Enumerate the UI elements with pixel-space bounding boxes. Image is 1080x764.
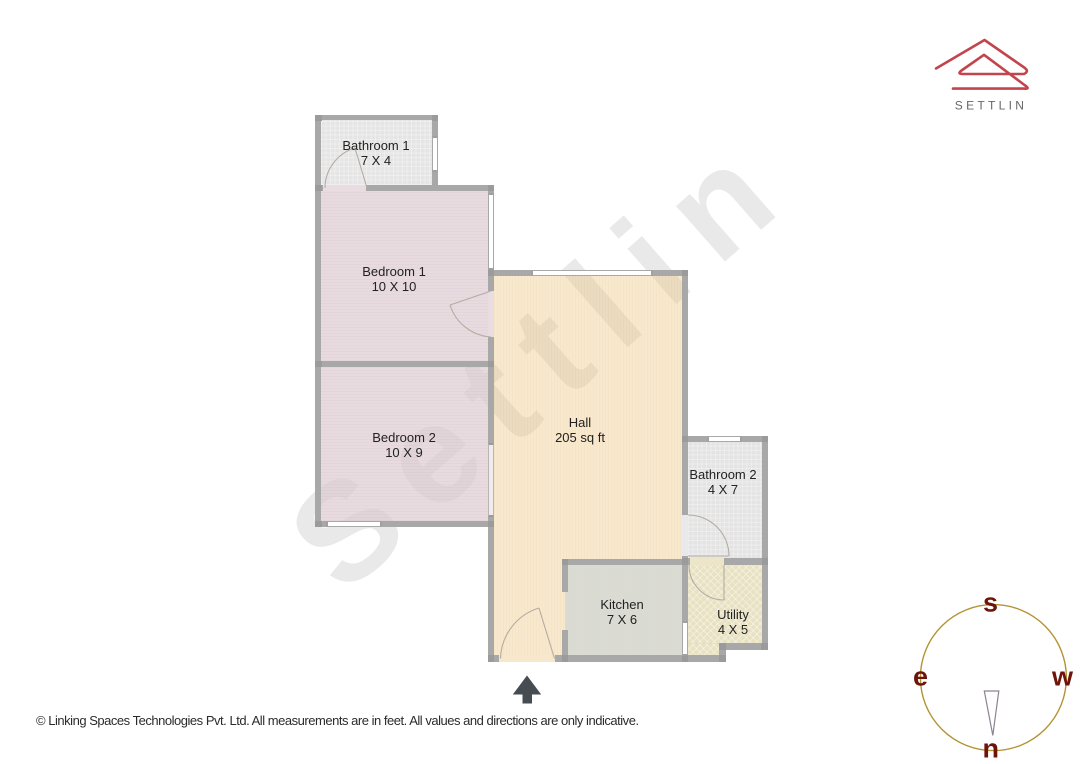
svg-text:w: w [1051,662,1074,692]
svg-text:s: s [983,588,998,618]
svg-text:e: e [913,662,928,692]
svg-text:n: n [983,734,1000,764]
svg-text:SETTLIN: SETTLIN [955,99,1027,113]
